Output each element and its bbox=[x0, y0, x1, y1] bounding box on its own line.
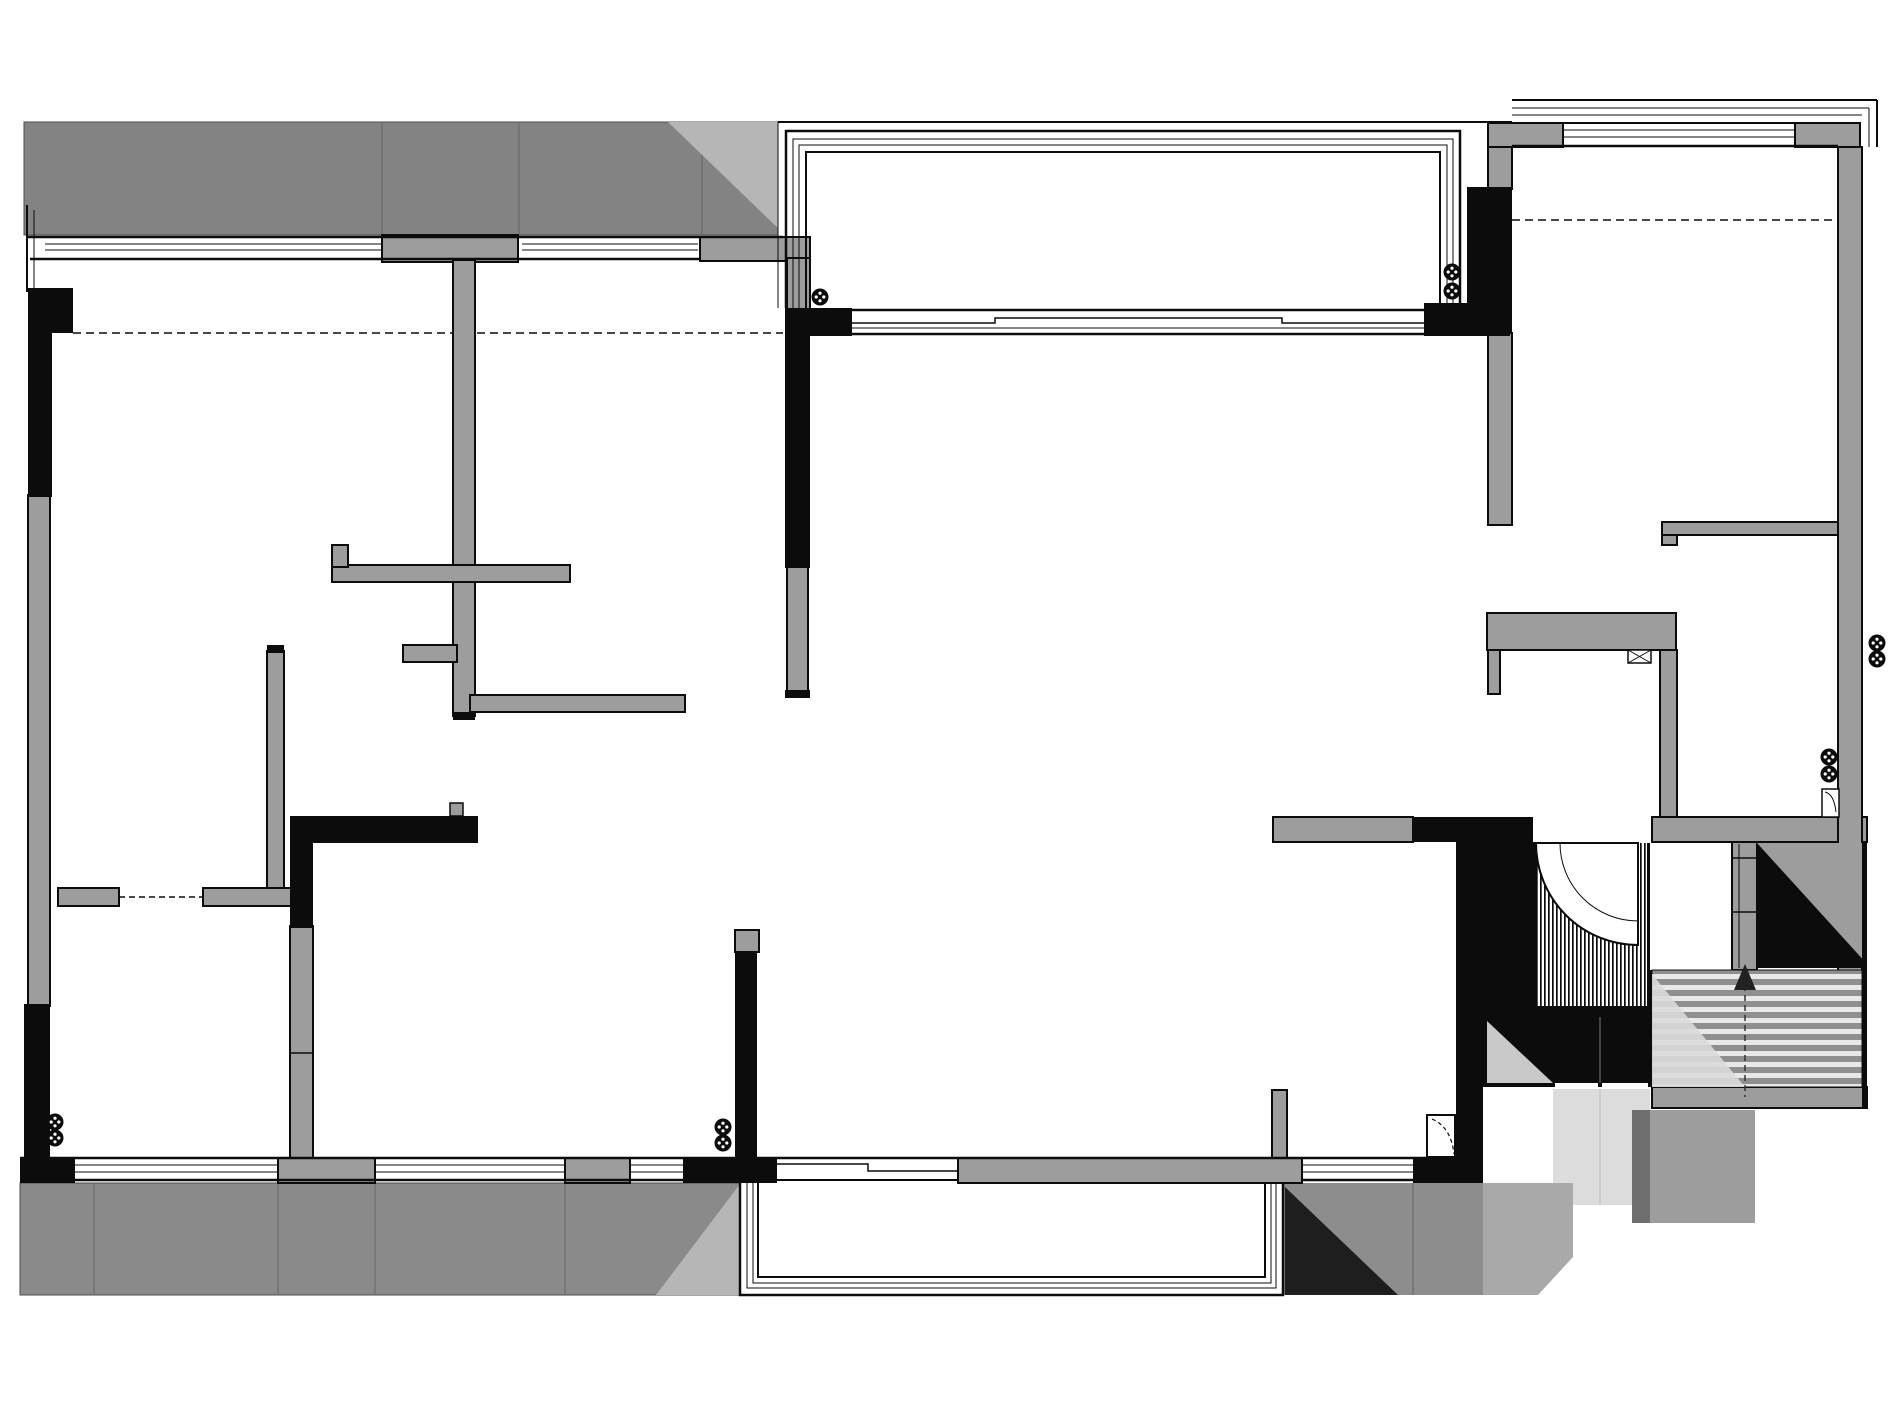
wall-cap-gray bbox=[735, 930, 759, 952]
blackwall-left-mid bbox=[28, 333, 52, 497]
floor-drain bbox=[715, 1135, 732, 1152]
floor-drain bbox=[1444, 283, 1461, 300]
floor-drain bbox=[1444, 264, 1461, 281]
wall-stub-bottom bbox=[1272, 1090, 1287, 1158]
blackwall-cap1 bbox=[785, 690, 810, 698]
wall-wardrobe-tab bbox=[332, 545, 348, 567]
blackwall-cap3 bbox=[267, 645, 284, 653]
blackbox-entry-b bbox=[1553, 1015, 1650, 1083]
wall-room-tr-left bbox=[1488, 333, 1512, 525]
wall-stair-bottom bbox=[1652, 1087, 1867, 1108]
blackwall-balcony-block-left bbox=[785, 308, 852, 336]
wall-wardrobe bbox=[332, 565, 570, 582]
blackwall-band bbox=[290, 816, 478, 843]
wall-tab-small bbox=[450, 803, 463, 816]
blackwall-entry-top bbox=[1413, 817, 1533, 842]
floor-drain bbox=[1869, 651, 1886, 668]
wall-bottom-band bbox=[958, 1158, 1302, 1183]
balcony-bottom-floor bbox=[740, 1183, 1283, 1295]
floor-drain bbox=[1821, 749, 1838, 766]
apron-slab-bottom-left bbox=[20, 1183, 740, 1295]
wall-hall-left bbox=[203, 888, 297, 906]
wall-kitchen-stub bbox=[1488, 650, 1500, 694]
threshold-slit bbox=[1602, 1083, 1648, 1089]
wall-left-exterior bbox=[28, 495, 50, 1006]
wall-hall-stub bbox=[58, 888, 119, 906]
blackwall-cap2 bbox=[453, 712, 475, 720]
blackwall-bottom-1 bbox=[683, 1158, 777, 1183]
blackwall-bottom-2 bbox=[1413, 1158, 1483, 1183]
wall-bed3-divider bbox=[290, 926, 313, 1158]
wall-balcony-left-lower bbox=[787, 565, 808, 695]
threshold-slit bbox=[1555, 1083, 1598, 1089]
door-leaf bbox=[1822, 789, 1839, 817]
blackwall-entry-west bbox=[1456, 842, 1483, 1183]
landing-side-block bbox=[1650, 1110, 1755, 1223]
plan-shapes bbox=[0, 0, 1890, 1417]
wall-bay-pier-right bbox=[1795, 123, 1860, 147]
wall-bath-left bbox=[1660, 650, 1677, 817]
wall-bay-pier-left bbox=[1488, 123, 1563, 147]
stair-rail bbox=[1732, 842, 1757, 970]
blackwall-living-left bbox=[785, 336, 810, 568]
wall-room-tr-bottom bbox=[1662, 522, 1838, 535]
wall-stub-room1 bbox=[403, 645, 457, 662]
floor-drain bbox=[47, 1114, 64, 1131]
wall-bay-return bbox=[1488, 147, 1512, 189]
blackwall-bed3-top bbox=[290, 843, 313, 928]
wall-kitchen bbox=[1487, 613, 1676, 650]
blackwall-bl-corner bbox=[20, 1158, 75, 1183]
roof-slab-top-left bbox=[24, 122, 783, 235]
floor-drain bbox=[1821, 766, 1838, 783]
floor-plan-svg bbox=[0, 0, 1890, 1417]
floor-plan bbox=[0, 0, 1890, 1417]
balcony-top-floor bbox=[778, 122, 1467, 312]
blackwall-left-low bbox=[24, 1004, 50, 1183]
floor-drain bbox=[812, 289, 829, 306]
blackwall-bed1-corner bbox=[28, 288, 73, 333]
door-leaf bbox=[1427, 1115, 1455, 1157]
wall-closet-vertical bbox=[267, 651, 284, 906]
blackwall-bed4 bbox=[735, 952, 757, 1158]
wall-room-tr-hook bbox=[1662, 535, 1677, 545]
floor-drain bbox=[47, 1130, 64, 1147]
blackwall-balcony-block-right bbox=[1424, 303, 1510, 336]
stair-right-edge bbox=[1862, 842, 1867, 1108]
floor-drain bbox=[715, 1119, 732, 1136]
wall-corridor bbox=[470, 695, 685, 712]
wall-bath-bottom bbox=[1652, 817, 1867, 842]
floor-drain bbox=[1869, 635, 1886, 652]
landing-dark-strip bbox=[1632, 1110, 1650, 1223]
wall-entry-top-gray bbox=[1273, 817, 1413, 842]
